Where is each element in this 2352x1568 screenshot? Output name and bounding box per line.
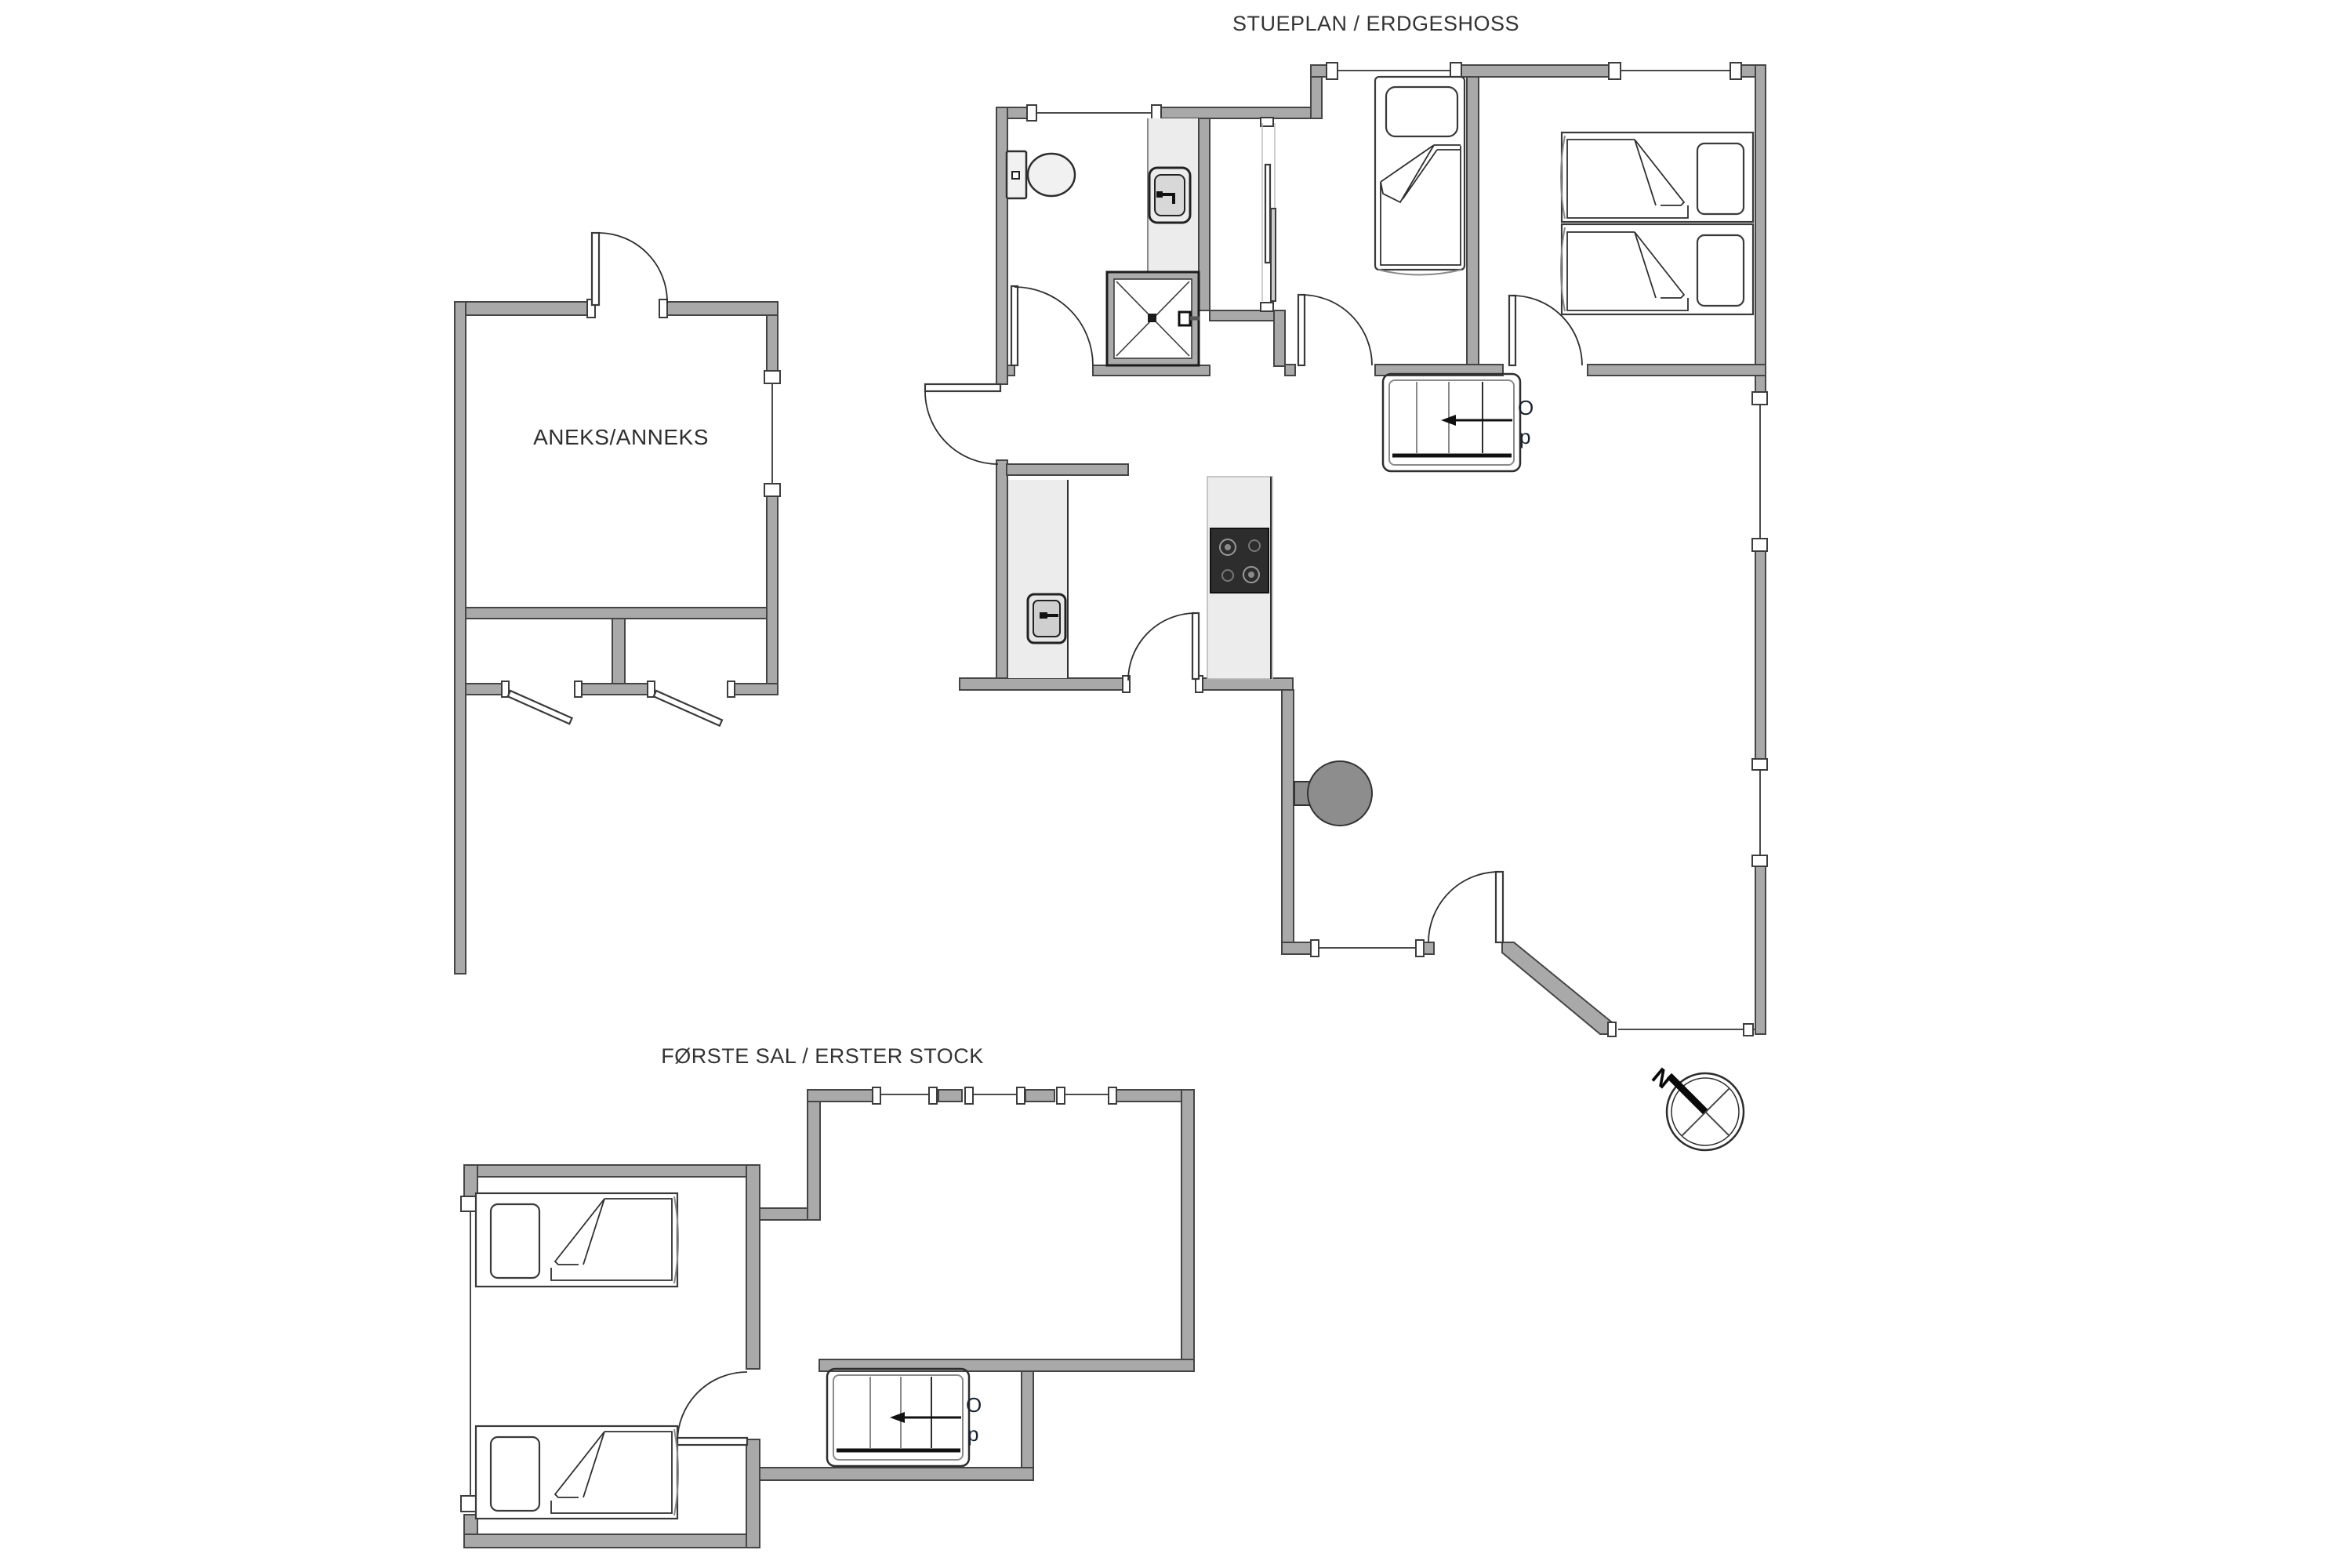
svg-text:p: p — [1519, 425, 1530, 448]
svg-text:ANEKS/ANNEKS: ANEKS/ANNEKS — [533, 425, 709, 449]
svg-text:FØRSTE SAL / ERSTER STOCK: FØRSTE SAL / ERSTER STOCK — [661, 1044, 984, 1068]
svg-text:O: O — [966, 1393, 982, 1417]
svg-text:p: p — [967, 1422, 978, 1446]
svg-text:O: O — [1518, 396, 1534, 419]
svg-text:STUEPLAN / ERDGESHOSS: STUEPLAN / ERDGESHOSS — [1232, 12, 1519, 35]
